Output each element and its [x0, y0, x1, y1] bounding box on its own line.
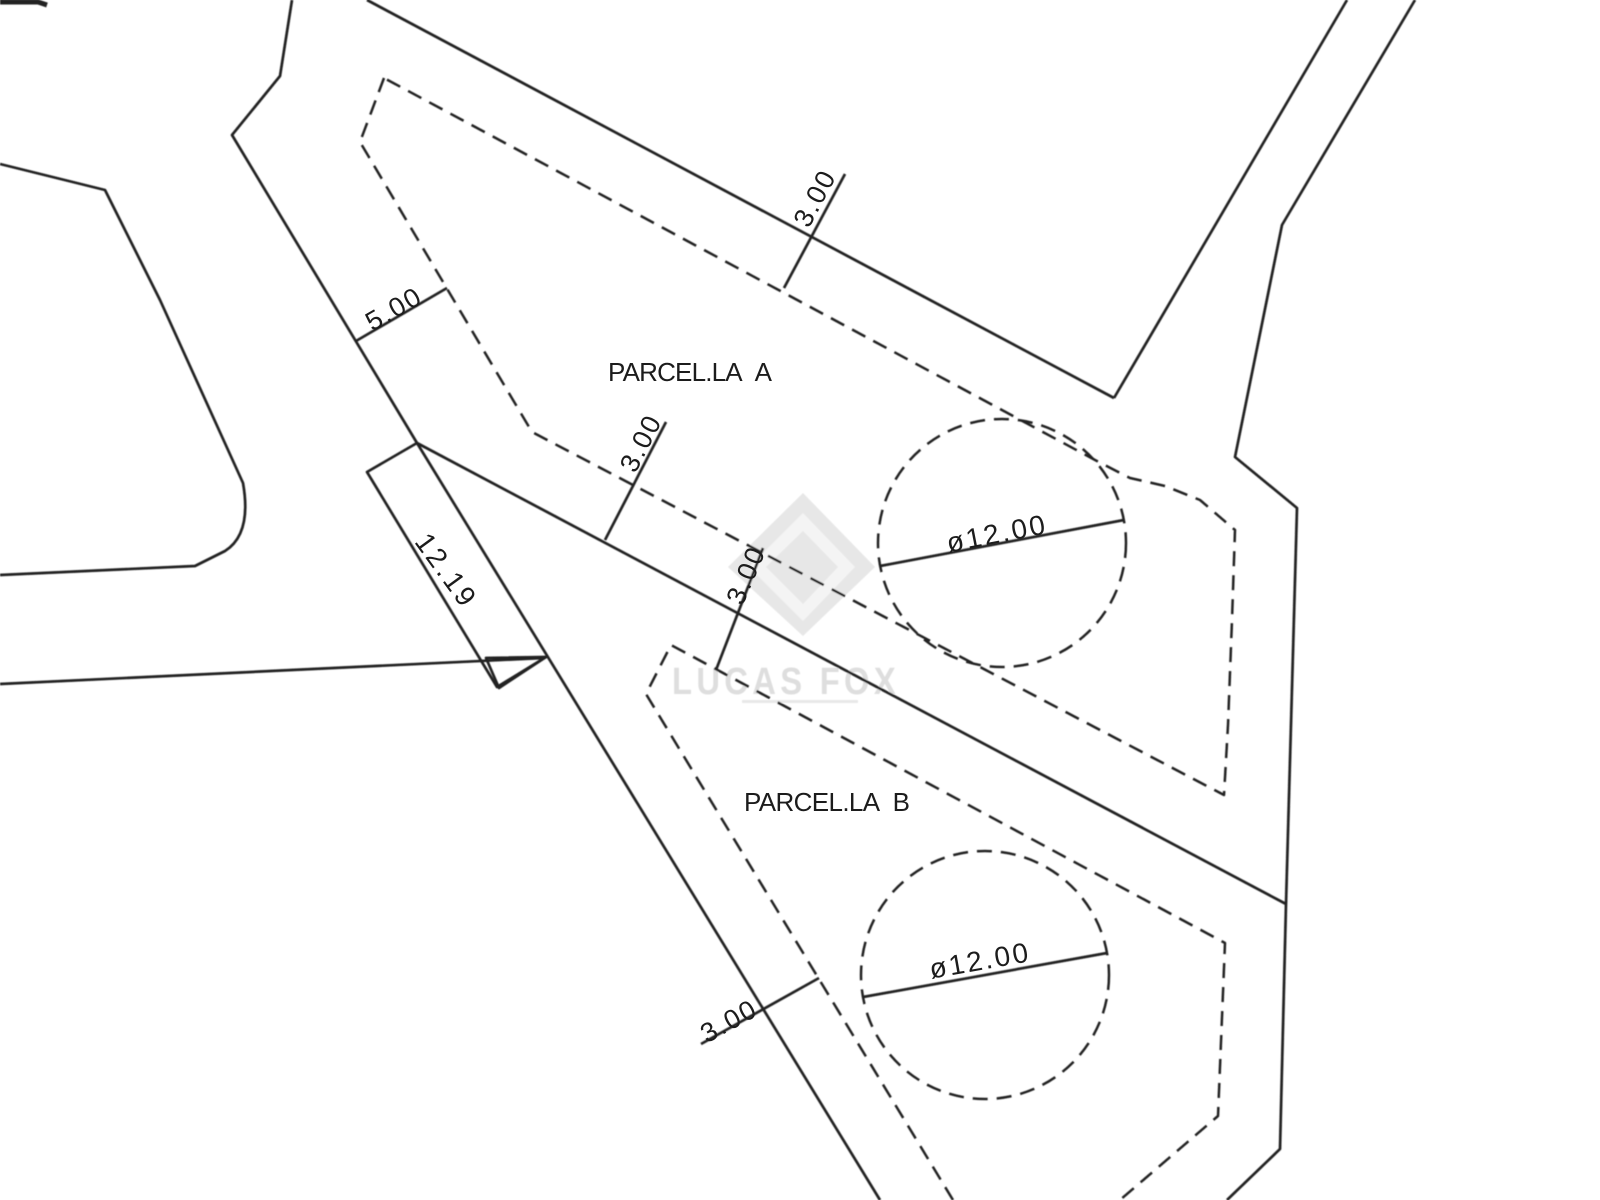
svg-text:3.00: 3.00: [788, 164, 843, 232]
svg-text:3.00: 3.00: [695, 993, 763, 1049]
svg-text:PARCEL.LA B: PARCEL.LA B: [744, 787, 910, 817]
svg-text:3.00: 3.00: [614, 409, 668, 477]
svg-text:ø12.00: ø12.00: [927, 936, 1033, 984]
svg-text:5.00: 5.00: [360, 281, 427, 337]
svg-text:ø12.00: ø12.00: [944, 509, 1050, 559]
svg-text:PARCEL.LA A: PARCEL.LA A: [608, 357, 773, 387]
